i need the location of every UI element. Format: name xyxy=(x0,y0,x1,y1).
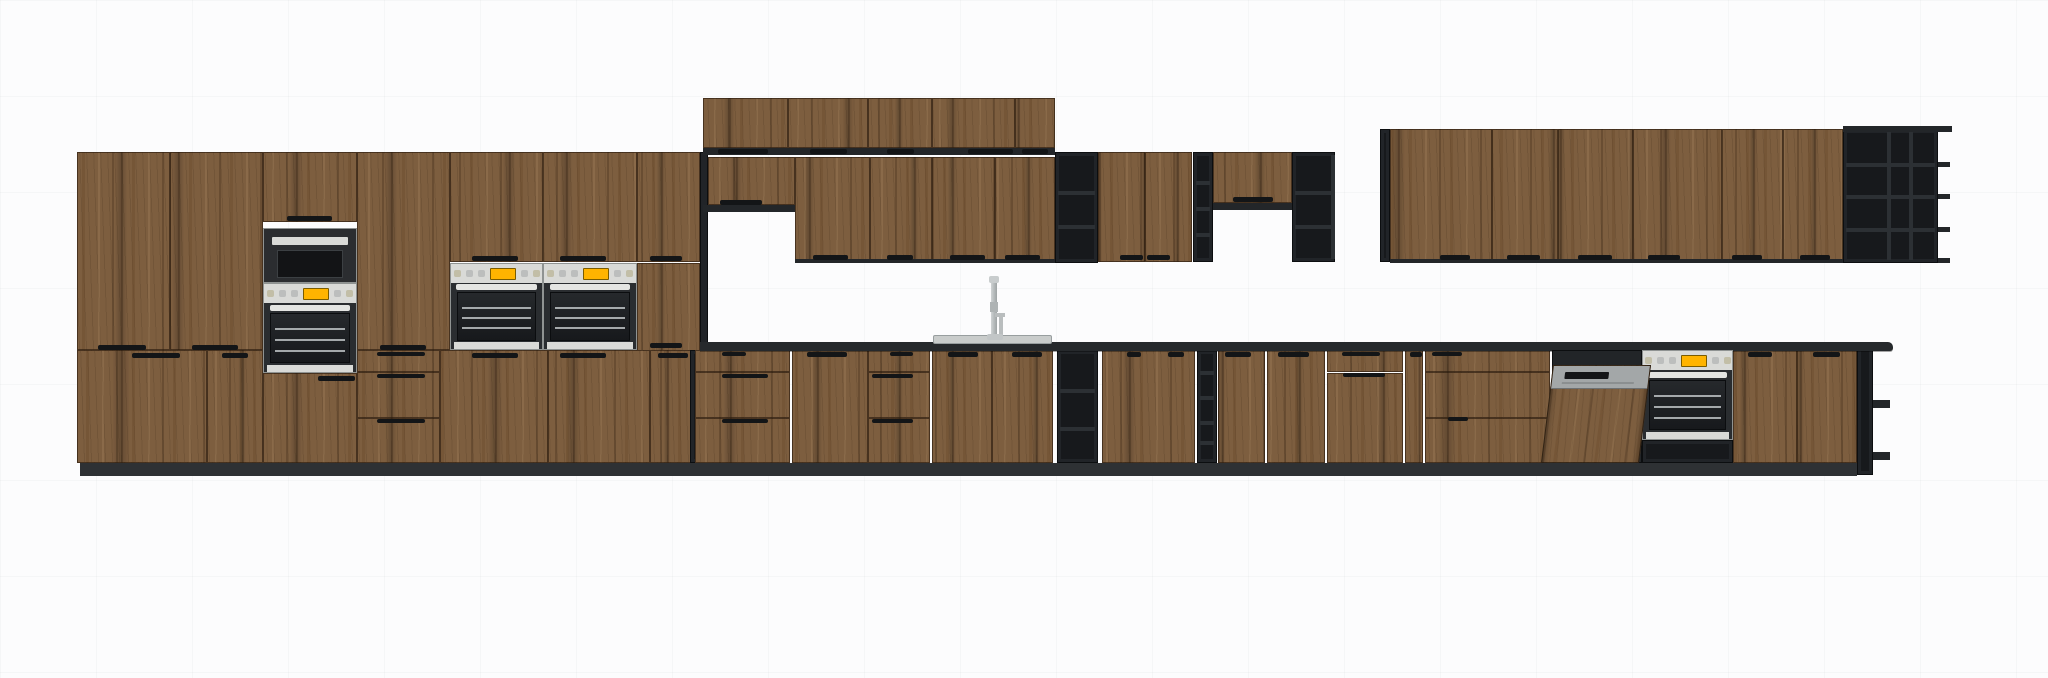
control-dot-icon xyxy=(346,290,353,297)
door-handle xyxy=(1648,255,1680,260)
shelf-board xyxy=(1295,191,1332,195)
right-run-side-panel xyxy=(1380,129,1390,262)
tall-lower-door-2[interactable] xyxy=(207,350,263,463)
door-handle xyxy=(1147,255,1170,260)
right-wall-door-5[interactable] xyxy=(1722,129,1783,262)
control-dot-icon xyxy=(279,290,286,297)
oven-handle-bar xyxy=(270,305,351,311)
above-oven-door-3[interactable] xyxy=(637,152,700,262)
oven-control-panel xyxy=(451,264,542,283)
oven-glass-door xyxy=(270,313,349,363)
open-shelf-unit-b-narrow[interactable] xyxy=(1193,152,1213,262)
wall-top-door-4[interactable] xyxy=(932,98,1015,148)
door-handle xyxy=(1732,255,1762,260)
oven-glass-door xyxy=(550,292,629,340)
control-dot-icon xyxy=(571,270,578,277)
oven-rack xyxy=(555,307,624,309)
right-wall-door-4[interactable] xyxy=(1633,129,1722,262)
sink-base-door-2[interactable] xyxy=(992,350,1053,463)
control-dot-icon xyxy=(1712,357,1719,364)
oven-rack xyxy=(462,317,531,319)
wall-mid-door-1[interactable] xyxy=(795,157,870,263)
oven-tower-top-door[interactable] xyxy=(263,152,357,222)
door-handle xyxy=(887,255,913,260)
oven-rack xyxy=(1654,417,1721,419)
control-dot-icon xyxy=(614,270,621,277)
faucet-spray-stem xyxy=(999,316,1003,336)
oven-display xyxy=(303,288,329,300)
wall-mid-door-4[interactable] xyxy=(995,157,1055,263)
oven-tower-bottom-door[interactable] xyxy=(263,373,357,463)
wall-mid-left-door[interactable] xyxy=(708,157,795,205)
oven-rack xyxy=(555,317,624,319)
shelf-board xyxy=(1295,225,1332,229)
door-handle xyxy=(192,345,238,350)
end-shelf-lip-4 xyxy=(1938,258,1950,263)
base-oven[interactable] xyxy=(1642,350,1733,440)
control-dot-icon xyxy=(547,270,554,277)
door-handle xyxy=(1342,352,1380,356)
shelf-board xyxy=(1200,371,1214,375)
oven-display xyxy=(1681,355,1707,367)
control-dot-icon xyxy=(1645,357,1652,364)
tower-oven[interactable] xyxy=(263,283,357,373)
control-dot-icon xyxy=(466,270,473,277)
base-oven-plinth xyxy=(1642,440,1733,463)
faucet[interactable] xyxy=(985,276,1007,340)
door-handle xyxy=(1448,417,1468,421)
door-handle xyxy=(1225,352,1251,357)
control-dot-icon xyxy=(521,270,528,277)
wall-top-door-1[interactable] xyxy=(703,98,788,148)
base-drawer-d3[interactable] xyxy=(1425,418,1550,463)
dishwasher-control-band xyxy=(1551,366,1650,389)
oven-glass-door xyxy=(1649,380,1726,430)
door-handle xyxy=(1410,352,1422,357)
base-end-shelf-lip-1 xyxy=(1873,400,1890,408)
door-handle xyxy=(1343,373,1385,377)
oven-bottom-trim xyxy=(267,365,354,372)
door-handle xyxy=(807,352,847,357)
right-wall-door-3[interactable] xyxy=(1558,129,1633,262)
wall-mid-left-underside xyxy=(703,205,795,212)
door-handle xyxy=(1120,255,1143,260)
oven-control-panel xyxy=(1643,351,1732,370)
door-handle xyxy=(890,352,913,356)
toe-kick xyxy=(80,463,1857,476)
door-handle xyxy=(1748,352,1772,357)
door-handle xyxy=(810,149,847,154)
door-handle xyxy=(377,374,425,378)
oven-display xyxy=(490,268,516,280)
tall-upper-door-3[interactable] xyxy=(357,152,450,350)
right-wall-door-1[interactable] xyxy=(1390,129,1492,262)
door-handle xyxy=(887,149,914,154)
door-handle xyxy=(132,353,180,358)
dishwasher-display xyxy=(1564,372,1609,379)
shelf-divider xyxy=(1909,132,1913,260)
control-dot-icon xyxy=(559,270,566,277)
oven-bottom-trim xyxy=(1646,432,1730,439)
oven-rack xyxy=(462,307,531,309)
door-handle xyxy=(948,352,978,357)
double-oven-right[interactable] xyxy=(543,263,637,350)
wall-top-door-5[interactable] xyxy=(1015,98,1055,148)
door-handle xyxy=(1813,352,1840,357)
base-door-1[interactable] xyxy=(792,350,868,463)
above-oven-door-2[interactable] xyxy=(543,152,637,262)
sink-base-door-1[interactable] xyxy=(932,350,992,463)
shelf-board xyxy=(1200,441,1214,445)
shelf-divider xyxy=(1331,155,1335,259)
door-handle xyxy=(718,149,768,154)
base-drawer-a3[interactable] xyxy=(695,418,790,463)
shelf-board xyxy=(1058,225,1095,229)
oven-handle-bar xyxy=(550,284,631,290)
control-dot-icon xyxy=(267,290,274,297)
end-shelf-lip-2 xyxy=(1938,194,1950,199)
tall-upper-door-1[interactable] xyxy=(77,152,170,350)
oven-bottom-trim xyxy=(454,342,540,349)
tall-upper-door-2[interactable] xyxy=(170,152,263,350)
dishwasher-door xyxy=(1541,365,1651,463)
base-drawer-d2[interactable] xyxy=(1425,372,1550,418)
control-dot-icon xyxy=(1657,357,1664,364)
base-door-5[interactable] xyxy=(1327,373,1403,463)
shelf-board xyxy=(1196,207,1210,211)
oven-rack xyxy=(275,328,344,330)
end-shelf-lip-1 xyxy=(1938,162,1950,167)
door-handle xyxy=(658,353,688,358)
door-handle xyxy=(722,352,746,356)
base-door-3[interactable] xyxy=(1218,350,1265,463)
above-oven-door-1[interactable] xyxy=(450,152,543,262)
control-dot-icon xyxy=(478,270,485,277)
door-handle xyxy=(380,345,426,350)
open-shelf-unit-a[interactable] xyxy=(1055,152,1098,263)
tall-drawer-2[interactable] xyxy=(357,372,440,418)
control-dot-icon xyxy=(334,290,341,297)
kitchen-render xyxy=(0,0,2048,678)
door-handle xyxy=(472,353,518,358)
faucet-joint xyxy=(990,302,998,312)
dishwasher-trim-line xyxy=(1562,382,1634,384)
wall-top-door-3[interactable] xyxy=(868,98,932,148)
shelf-board xyxy=(1058,191,1095,195)
microwave-trim xyxy=(272,237,347,245)
oven-rack xyxy=(1654,406,1721,408)
dishwasher-open[interactable] xyxy=(1552,350,1642,463)
wall-top-door-2[interactable] xyxy=(788,98,868,148)
oven-bottom-trim xyxy=(547,342,634,349)
shelf-board xyxy=(1196,233,1210,237)
wall-door-pair-1[interactable] xyxy=(1098,152,1145,262)
shelf-board xyxy=(1196,181,1210,185)
door-handle xyxy=(872,374,913,378)
door-handle xyxy=(968,149,1013,154)
oven-display xyxy=(583,268,609,280)
beside-oven-door[interactable] xyxy=(637,263,700,351)
base-end-panel xyxy=(1857,343,1873,475)
door-handle xyxy=(950,255,985,260)
door-handle xyxy=(1278,352,1309,357)
door-handle xyxy=(1800,255,1830,260)
door-handle xyxy=(377,352,425,356)
end-shelf-top-lip xyxy=(1843,126,1952,132)
door-handle xyxy=(560,256,606,261)
control-dot-icon xyxy=(626,270,633,277)
end-open-shelf-unit[interactable] xyxy=(1843,129,1938,263)
end-shelf-lip-3 xyxy=(1938,227,1950,232)
door-handle xyxy=(472,256,518,261)
door-handle xyxy=(720,200,762,205)
door-handle xyxy=(222,353,248,358)
tall-lower-door-1[interactable] xyxy=(77,350,207,463)
door-handle xyxy=(1507,255,1540,260)
shelf-board xyxy=(1200,396,1214,400)
faucet-base xyxy=(987,334,1003,340)
door-handle xyxy=(1578,255,1612,260)
door-handle xyxy=(722,374,768,378)
door-handle xyxy=(1168,352,1184,357)
oven-control-panel xyxy=(264,284,356,303)
base-end-shelf-lip-2 xyxy=(1873,452,1890,460)
control-dot-icon xyxy=(454,270,461,277)
open-shelf-unit-c[interactable] xyxy=(1292,152,1335,262)
control-dot-icon xyxy=(1669,357,1676,364)
oven-rack xyxy=(275,339,344,341)
wall-door-pair-2[interactable] xyxy=(1145,152,1192,262)
tall-run-side-panel xyxy=(700,152,708,350)
base-door-4[interactable] xyxy=(1267,350,1325,463)
door-handle xyxy=(377,419,425,423)
tall-lower-door-4[interactable] xyxy=(548,350,650,463)
control-dot-icon xyxy=(291,290,298,297)
wall-mid-door-3[interactable] xyxy=(932,157,995,263)
door-handle xyxy=(287,216,332,221)
door-handle xyxy=(872,419,913,423)
door-handle xyxy=(650,343,682,348)
oven-handle-bar xyxy=(456,284,536,290)
control-dot-icon xyxy=(533,270,540,277)
microwave[interactable] xyxy=(263,228,357,283)
door-handle xyxy=(1127,352,1141,357)
shelf-board xyxy=(1060,427,1095,431)
base-open-shelf-b-narrow[interactable] xyxy=(1197,350,1217,463)
door-handle xyxy=(1440,255,1470,260)
door-handle xyxy=(813,255,848,260)
door-handle xyxy=(1432,352,1462,356)
shelf-divider xyxy=(1887,132,1891,260)
door-handle xyxy=(560,353,606,358)
oven-rack xyxy=(275,350,344,352)
door-handle xyxy=(1012,352,1042,357)
shelf-board xyxy=(1200,421,1214,425)
base-drawer-b2[interactable] xyxy=(868,372,930,418)
control-dot-icon xyxy=(1724,357,1731,364)
base-open-shelf-a[interactable] xyxy=(1057,350,1098,463)
wall-half-height-door[interactable] xyxy=(1213,152,1292,203)
base-door-6-narrow[interactable] xyxy=(1405,350,1423,463)
wall-half-height-underside xyxy=(1213,203,1292,210)
base-door-2[interactable] xyxy=(1102,350,1195,463)
microwave-screen xyxy=(277,250,343,278)
door-handle xyxy=(1005,255,1040,260)
base-drawer-b3[interactable] xyxy=(868,418,930,463)
door-handle xyxy=(650,256,682,261)
oven-handle-bar xyxy=(1648,372,1726,378)
oven-rack xyxy=(555,327,624,329)
door-handle xyxy=(98,345,146,350)
double-oven-left[interactable] xyxy=(450,263,543,350)
oven-rack xyxy=(1654,395,1721,397)
tall-drawer-3[interactable] xyxy=(357,418,440,463)
base-door-8[interactable] xyxy=(1797,350,1857,463)
oven-glass-door xyxy=(457,292,535,340)
oven-rack xyxy=(462,327,531,329)
door-handle xyxy=(1022,149,1048,154)
door-handle xyxy=(1233,197,1273,202)
tall-lower-door-3[interactable] xyxy=(440,350,548,463)
faucet-cap xyxy=(989,276,999,283)
oven-control-panel xyxy=(544,264,636,283)
door-handle xyxy=(722,419,768,423)
wall-mid-door-2[interactable] xyxy=(870,157,932,263)
right-wall-door-6[interactable] xyxy=(1783,129,1843,262)
base-door-7[interactable] xyxy=(1733,350,1797,463)
door-handle xyxy=(318,376,355,381)
right-wall-door-2[interactable] xyxy=(1492,129,1558,262)
base-drawer-a2[interactable] xyxy=(695,372,790,418)
shelf-board xyxy=(1060,389,1095,393)
